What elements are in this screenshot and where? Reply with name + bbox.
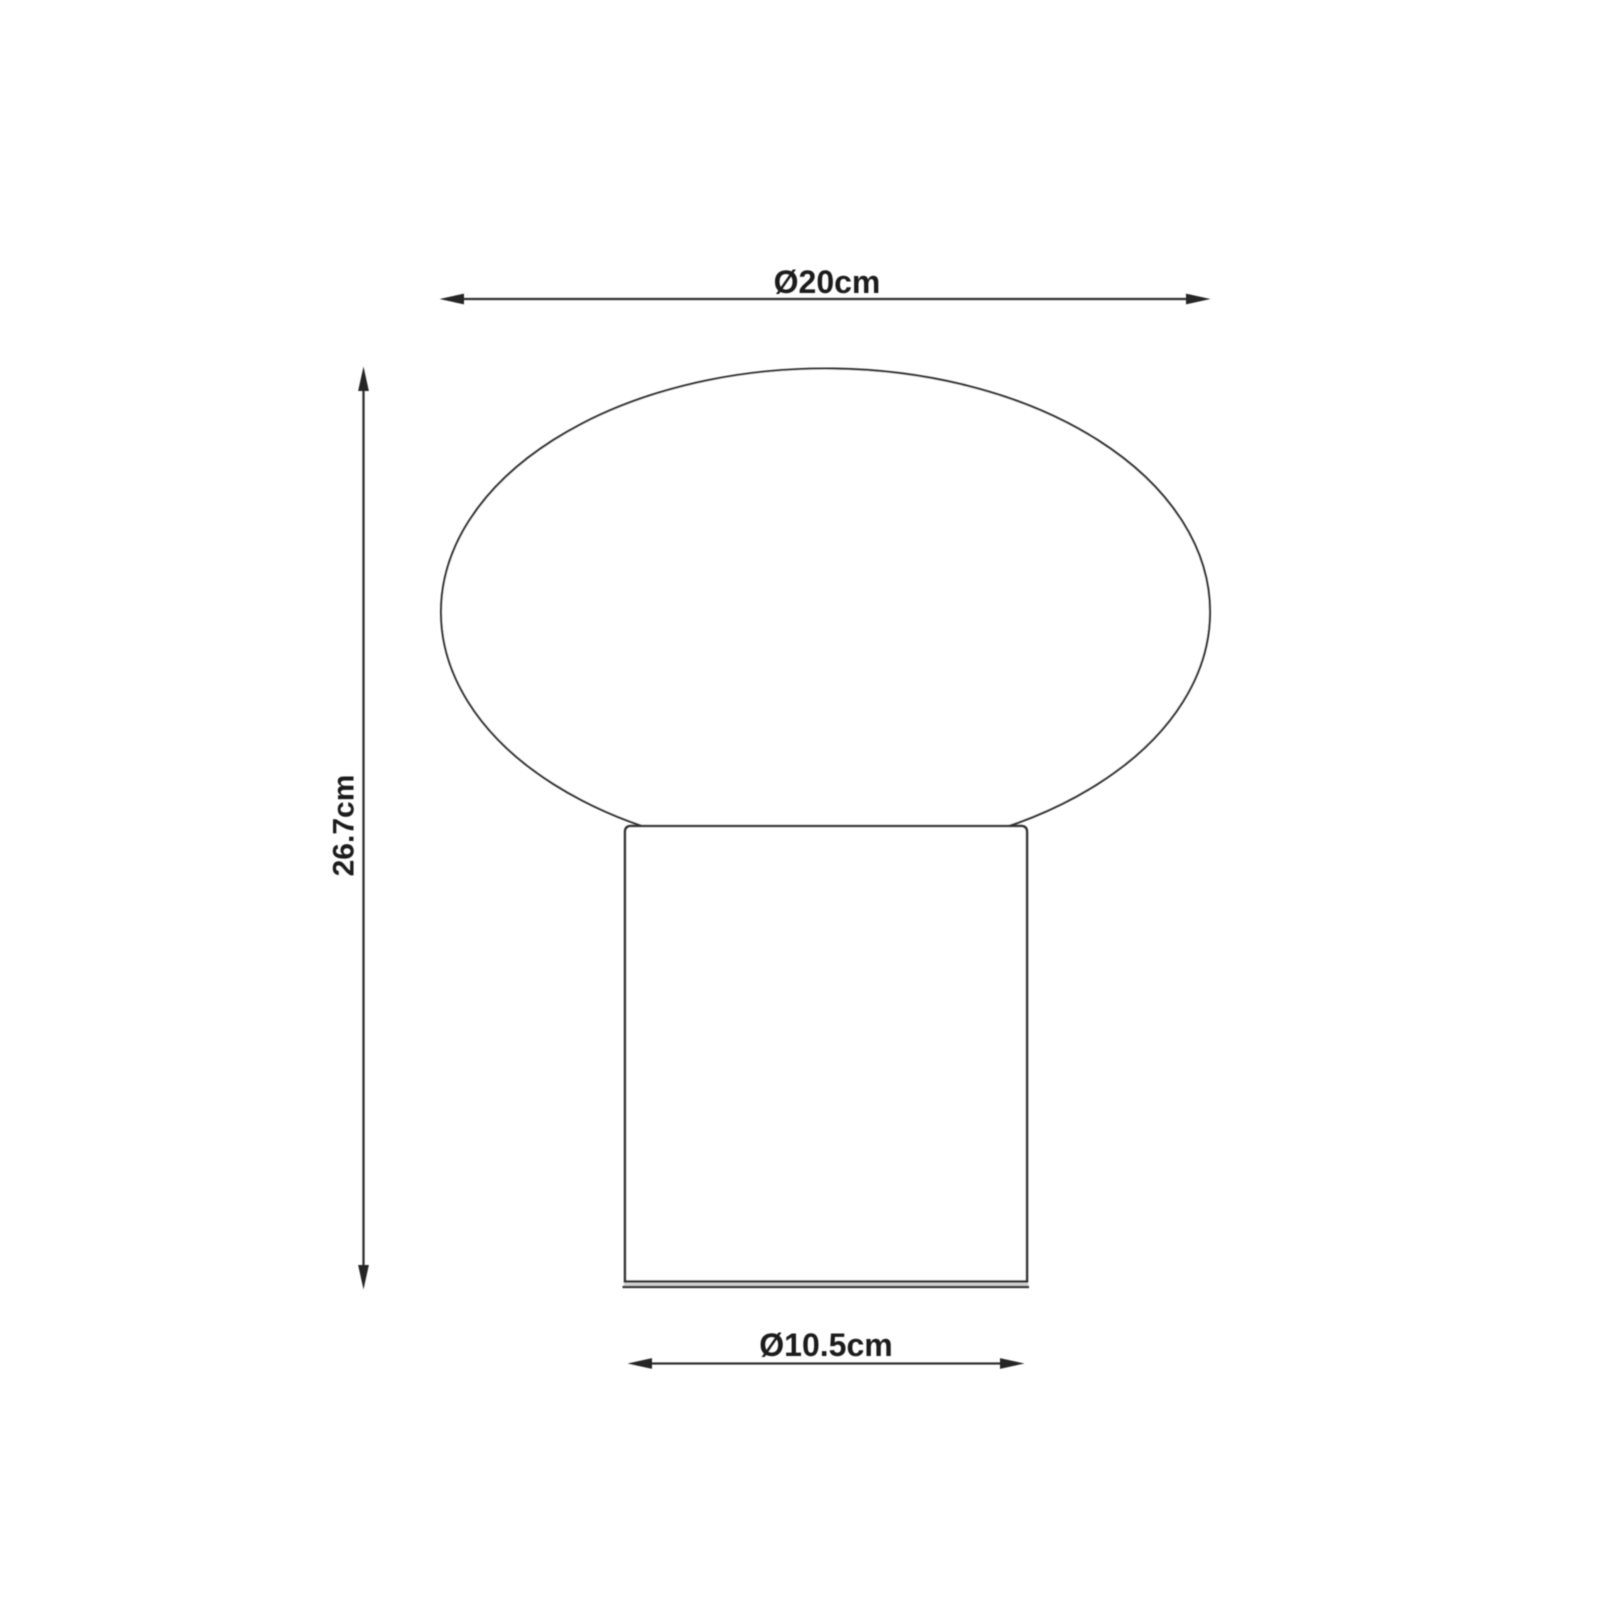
svg-text:Ø10.5cm: Ø10.5cm bbox=[759, 1327, 892, 1363]
svg-text:Ø20cm: Ø20cm bbox=[774, 264, 881, 300]
svg-text:26.7cm: 26.7cm bbox=[328, 775, 361, 877]
